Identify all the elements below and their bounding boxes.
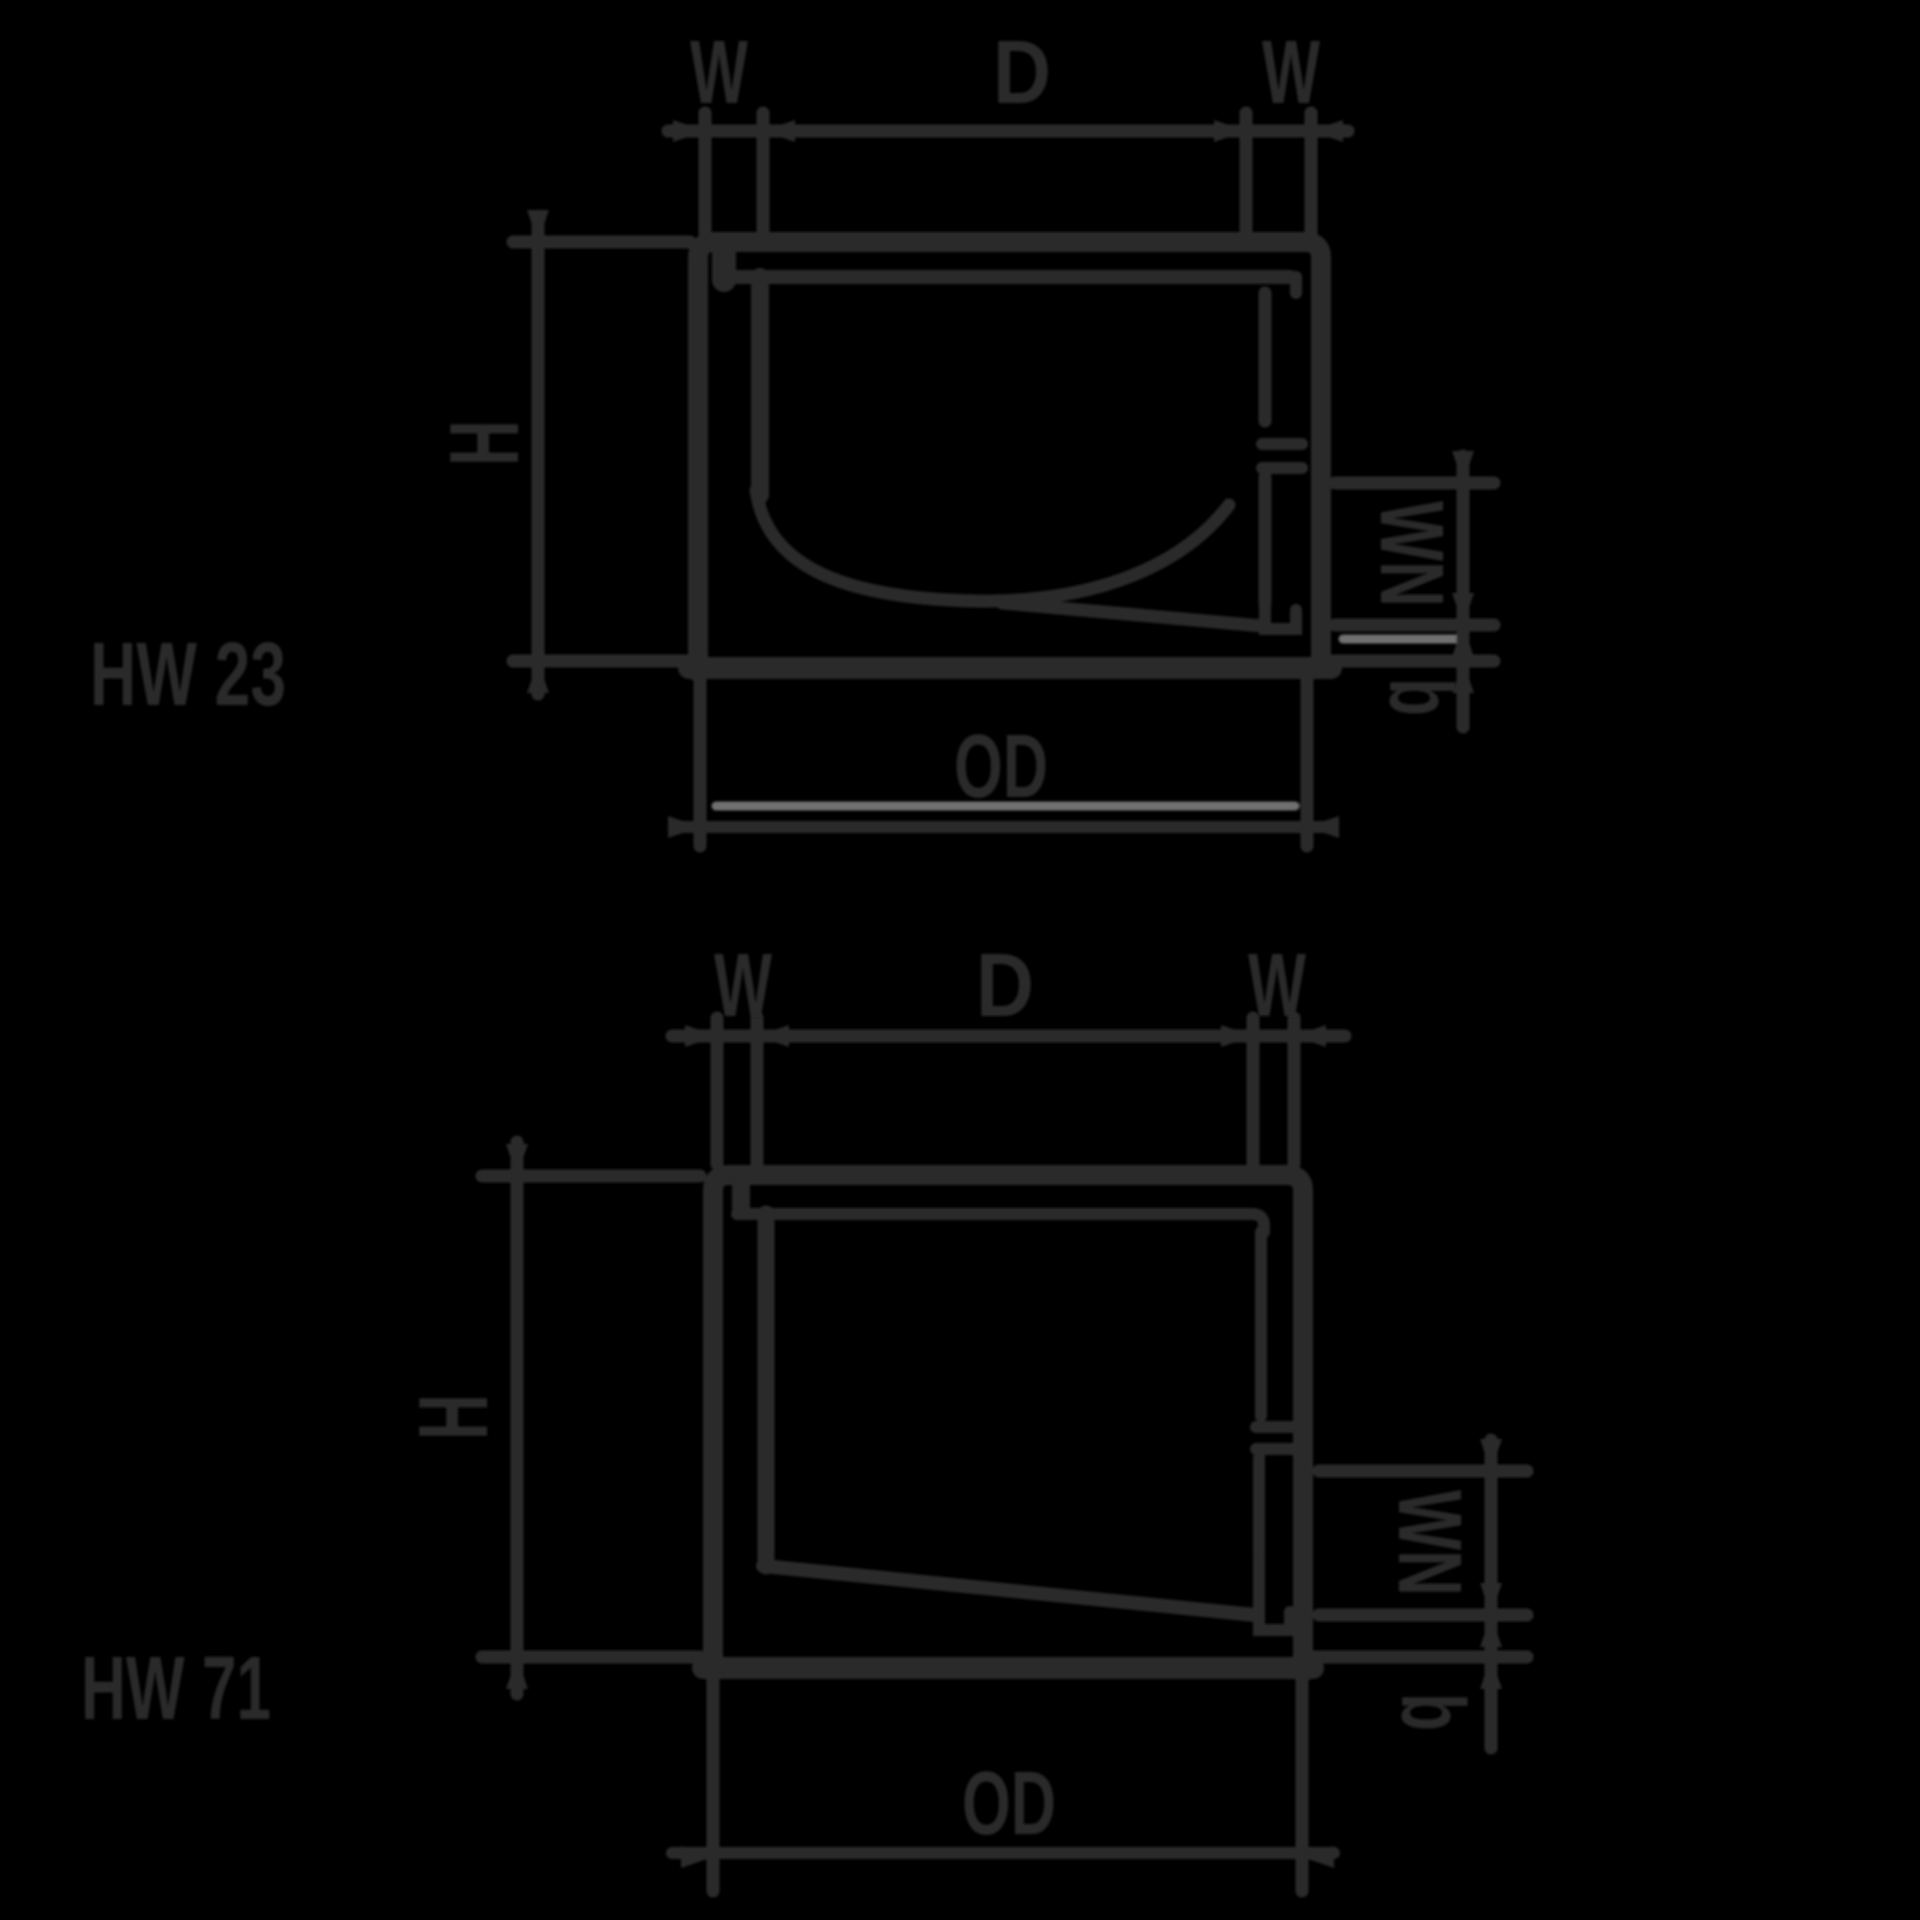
svg-text:HW 71: HW 71	[81, 1639, 271, 1739]
svg-text:W: W	[690, 23, 748, 123]
svg-text:H: H	[429, 420, 539, 466]
svg-text:b: b	[1370, 678, 1470, 716]
svg-text:D: D	[993, 23, 1051, 123]
svg-text:WN: WN	[1361, 501, 1461, 607]
svg-text:OD: OD	[962, 1754, 1056, 1854]
svg-text:b: b	[1382, 1693, 1482, 1731]
svg-text:WN: WN	[1379, 1490, 1479, 1596]
svg-text:D: D	[976, 936, 1034, 1036]
svg-text:W: W	[1262, 23, 1320, 123]
svg-text:W: W	[714, 936, 772, 1036]
svg-text:HW 23: HW 23	[90, 625, 286, 725]
svg-text:W: W	[1248, 936, 1306, 1036]
svg-text:H: H	[398, 1394, 508, 1440]
svg-text:OD: OD	[954, 717, 1048, 817]
